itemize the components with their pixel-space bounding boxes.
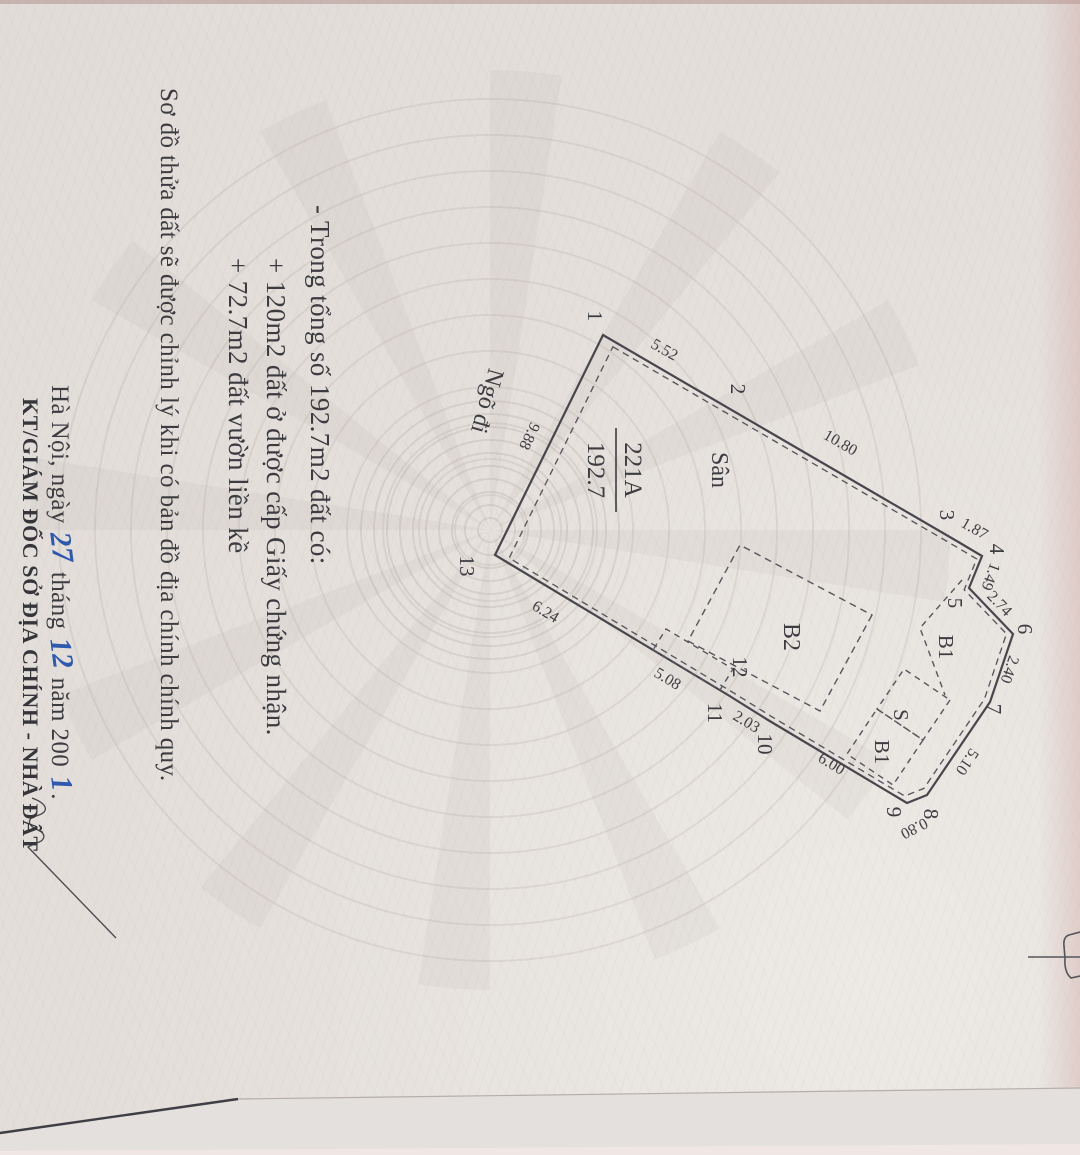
label-san: Sân [706,452,732,488]
vertex-label-3: 3 [935,510,959,521]
signer-title: KT/GIÁM ĐỐC SỞ ĐỊA CHÍNH - NHÀ ĐẤT [17,398,43,852]
month-label: tháng [46,572,73,630]
handwritten-day: 27 [42,530,80,565]
date-period: . [46,793,73,800]
dim-0.80: 0.80 [898,814,931,842]
label-ngo-di: Ngõ đi [465,366,508,437]
label-s-room: S [889,709,913,721]
dim-6.00: 6.00 [815,750,848,779]
photographed-land-certificate-page: 1 2 3 4 5 6 7 8 9 10 11 12 13 5.52 10.80… [0,0,1080,1155]
handwritten-month: 12 [42,636,80,671]
dim-2.03: 2.03 [730,708,763,737]
vertex-label-12: 12 [728,657,752,678]
document-content-rotated: 1 2 3 4 5 6 7 8 9 10 11 12 13 5.52 10.80… [0,0,1080,1155]
year-label: năm 200 [46,678,73,768]
vertex-label-10: 10 [753,734,777,755]
note-residential-area: + 120m2 đất ở được cấp Giấy chứng nhận. [260,258,291,736]
dim-5.52: 5.52 [648,336,681,365]
vertex-label-13: 13 [455,556,479,577]
vertex-label-2: 2 [726,384,750,395]
dim-5.08: 5.08 [651,665,684,694]
vertex-label-5: 5 [943,598,967,609]
vertex-label-7: 7 [982,704,1006,715]
vertex-label-4: 4 [985,544,1009,555]
label-b1-top: B1 [934,635,958,660]
dim-6.24: 6.24 [529,598,562,627]
dim-9.88: 9.88 [515,420,543,453]
dim-10.80: 10.80 [820,427,860,460]
vertex-label-1: 1 [583,311,607,322]
date-prefix: Hà Nội, ngày [46,385,73,524]
dim-1.87: 1.87 [958,515,991,544]
vertex-label-11: 11 [703,703,727,723]
date-line: Hà Nội, ngày 27 tháng 12 năm 200 1. [44,385,78,800]
s-room-dashed [877,669,950,740]
dim-2.40: 2.40 [997,653,1022,685]
vertex-label-9: 9 [882,807,906,818]
dim-1.49: 1.49 [977,560,1003,592]
label-b1-small: B1 [870,740,894,765]
handwritten-year-digit: 1 [43,774,79,793]
vertex-label-6: 6 [1013,624,1037,635]
parcel-number: 221A [619,442,646,498]
note-total-area: - Trong tổng số 192.7m2 đất có: [304,205,335,565]
note-garden-area: + 72.7m2 đất vườn liền kề [222,258,253,554]
label-b2: B2 [778,623,804,651]
parcel-area: 192.7 [582,442,609,498]
revision-note: Sơ đồ thửa đất sẽ được chỉnh lý khi có b… [154,88,182,781]
